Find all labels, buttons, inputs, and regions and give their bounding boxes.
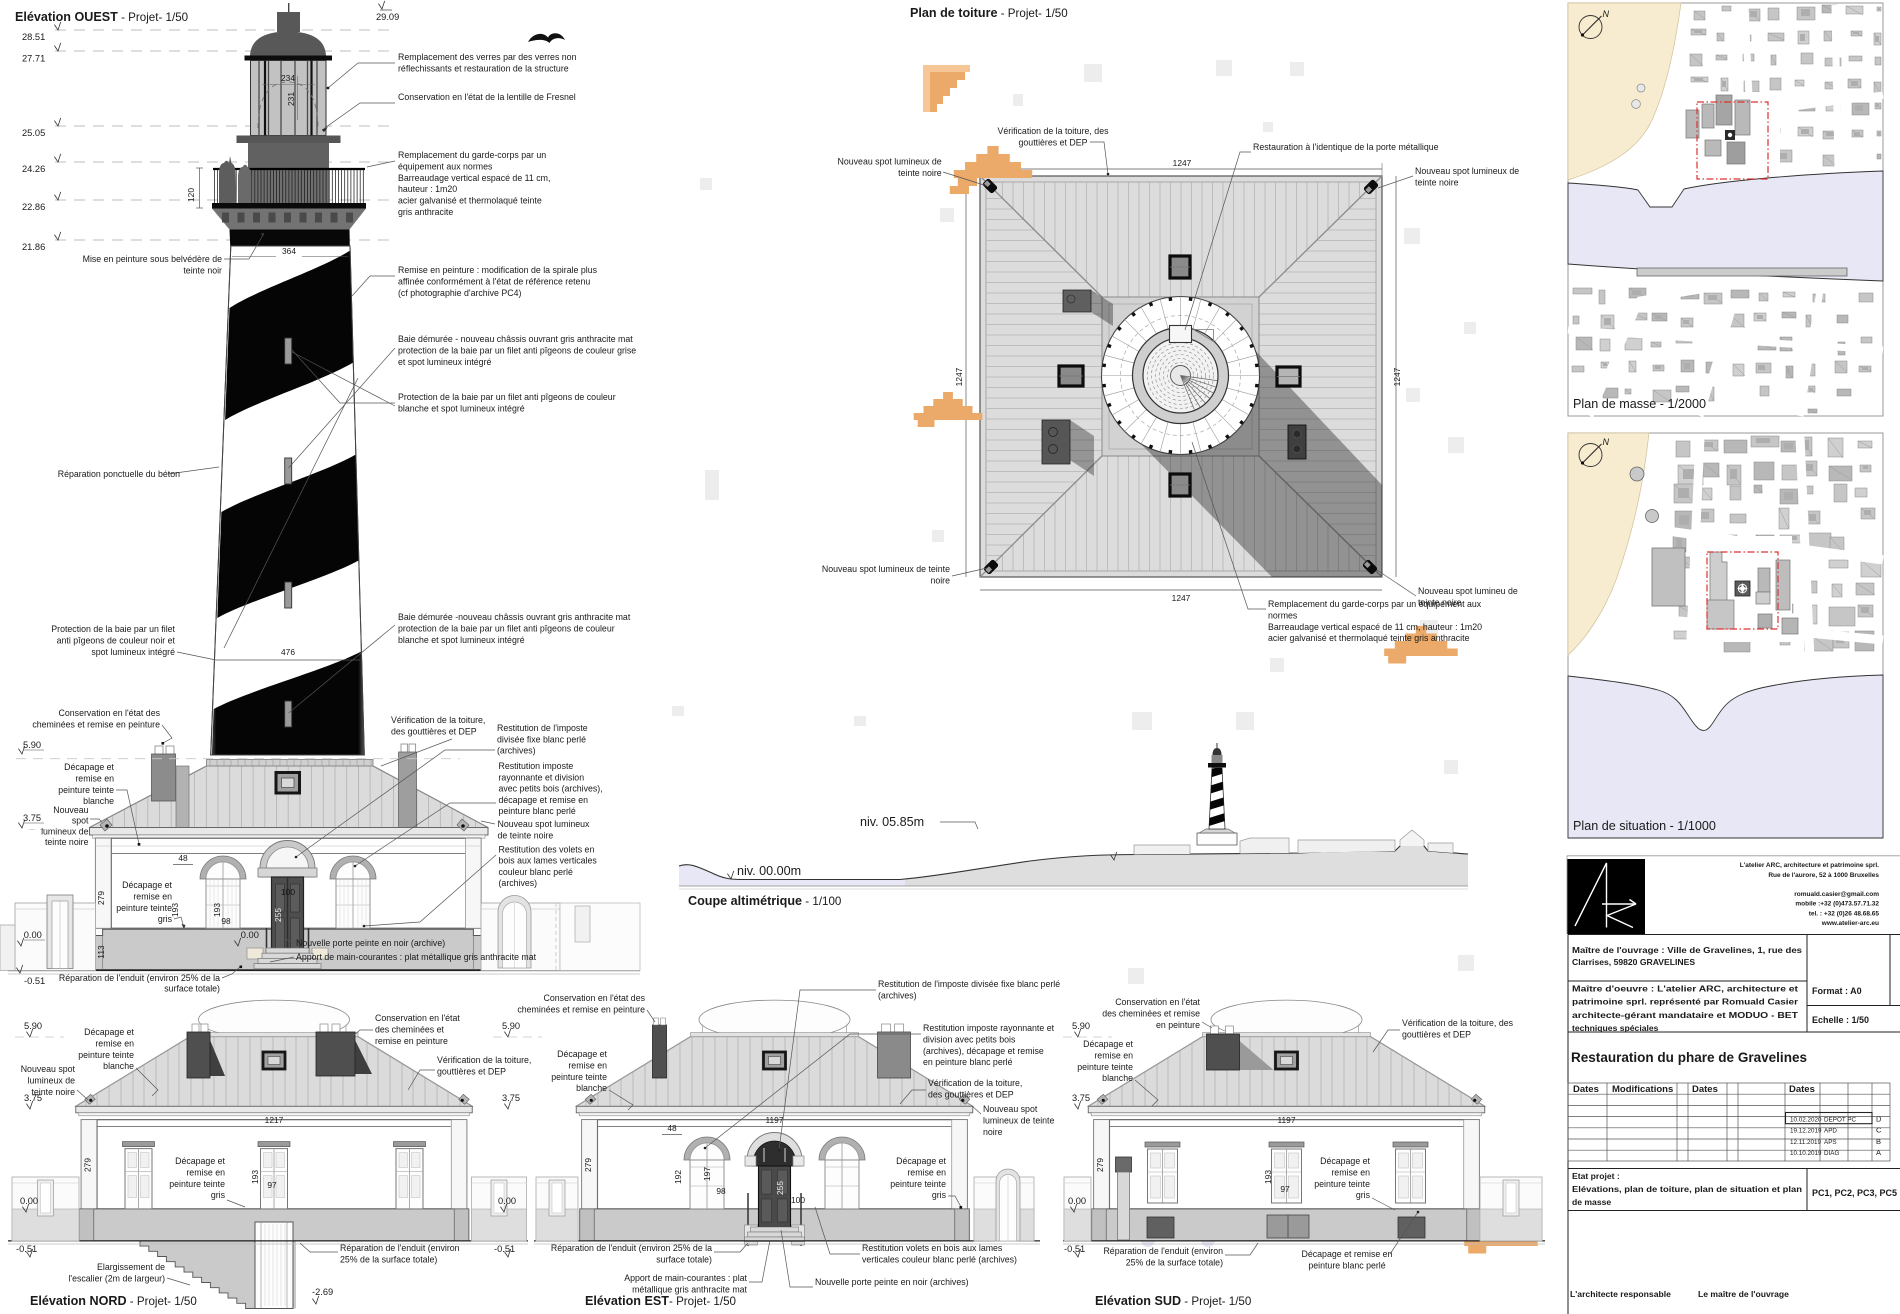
svg-text:Remplacement du garde-corps pa: Remplacement du garde-corps par un équip…	[1268, 599, 1482, 643]
svg-text:10.02.2020: 10.02.2020	[1790, 1117, 1822, 1124]
svg-text:PC1, PC2, PC3, PC5: PC1, PC2, PC3, PC5	[1812, 1188, 1897, 1198]
svg-text:niv. 05.85m: niv. 05.85m	[860, 815, 924, 829]
svg-text:0.00: 0.00	[1068, 1196, 1086, 1206]
svg-text:476: 476	[281, 647, 295, 657]
svg-text:98: 98	[221, 916, 231, 926]
svg-text:279: 279	[96, 891, 106, 905]
svg-text:19.12.2019: 19.12.2019	[1790, 1128, 1822, 1135]
svg-text:Restauration du phare de Grave: Restauration du phare de Gravelines	[1571, 1050, 1807, 1065]
svg-text:A: A	[1876, 1148, 1881, 1157]
svg-text:Elévations, plan de toiture, p: Elévations, plan de toiture, plan de sit…	[1572, 1184, 1802, 1194]
svg-text:B: B	[1876, 1137, 1881, 1146]
svg-text:techniques spéciales: techniques spéciales	[1572, 1023, 1659, 1033]
svg-text:Plan de situation - 1/1000: Plan de situation - 1/1000	[1573, 819, 1716, 833]
svg-text:Le maître de l'ouvrage: Le maître de l'ouvrage	[1698, 1289, 1789, 1299]
svg-text:architecte-gérant mandataire e: architecte-gérant mandataire et MODUO - …	[1572, 1010, 1799, 1020]
svg-text:Echelle : 1/50: Echelle : 1/50	[1812, 1015, 1869, 1025]
svg-text:279: 279	[583, 1158, 593, 1172]
svg-text:APD: APD	[1824, 1128, 1837, 1135]
svg-text:Vérification de la toiture,des: Vérification de la toiture,des gouttière…	[391, 715, 485, 736]
svg-text:Clarrises, 59820 GRAVELINES: Clarrises, 59820 GRAVELINES	[1572, 957, 1695, 967]
svg-text:25.05: 25.05	[22, 128, 45, 138]
svg-text:Dates: Dates	[1692, 1084, 1718, 1095]
svg-text:27.71: 27.71	[22, 54, 45, 64]
svg-text:1247: 1247	[1173, 158, 1192, 168]
svg-text:Restitution volets en bois aux: Restitution volets en bois aux lamesvert…	[862, 1243, 1017, 1264]
svg-text:Conservation en l'état de la l: Conservation en l'état de la lentille de…	[398, 92, 576, 102]
svg-text:patrimoine sprl. représenté pa: patrimoine sprl. représenté par Romuald …	[1572, 997, 1799, 1007]
svg-text:10.10.2019: 10.10.2019	[1790, 1150, 1822, 1157]
svg-text:Nouvelle porte peinte en noir: Nouvelle porte peinte en noir (archive)	[296, 938, 445, 948]
svg-text:5.90: 5.90	[23, 740, 41, 750]
svg-text:Format : A0: Format : A0	[1812, 986, 1862, 996]
svg-text:255: 255	[273, 908, 283, 922]
svg-text:Elévation OUEST - Projet- 1/50: Elévation OUEST - Projet- 1/50	[15, 10, 188, 24]
svg-text:niv. 00.00m: niv. 00.00m	[737, 864, 801, 878]
svg-text:Restauration à l'identique de: Restauration à l'identique de la porte m…	[1253, 142, 1439, 152]
svg-text:Vérification de la toiture,des: Vérification de la toiture,des gouttière…	[928, 1078, 1022, 1099]
svg-text:193: 193	[170, 903, 180, 917]
svg-text:98: 98	[716, 1186, 726, 1196]
svg-text:Maître de l'ouvrage : Ville de: Maître de l'ouvrage : Ville de Graveline…	[1572, 945, 1802, 955]
svg-text:193: 193	[1263, 1170, 1273, 1184]
svg-text:Réparation ponctuelle du béton: Réparation ponctuelle du béton	[58, 469, 180, 479]
svg-text:3.75: 3.75	[1072, 1093, 1090, 1103]
svg-text:12.11.2019: 12.11.2019	[1790, 1139, 1822, 1146]
svg-text:97: 97	[1280, 1184, 1290, 1194]
svg-text:0.00: 0.00	[241, 930, 259, 940]
svg-text:Maître d'oeuvre : L'atelier AR: Maître d'oeuvre : L'atelier ARC, archite…	[1572, 984, 1798, 994]
svg-text:Plan de toiture - Projet- 1/50: Plan de toiture - Projet- 1/50	[910, 6, 1068, 20]
svg-text:Apport de main-courantes : pla: Apport de main-courantes : platmétalliqu…	[624, 1273, 747, 1294]
svg-text:C: C	[1876, 1126, 1882, 1135]
svg-text:28.51: 28.51	[22, 32, 45, 42]
svg-text:Coupe altimétrique - 1/100: Coupe altimétrique - 1/100	[688, 894, 841, 908]
svg-text:Dates: Dates	[1573, 1084, 1599, 1095]
svg-text:193: 193	[250, 1170, 260, 1184]
svg-text:0.00: 0.00	[24, 930, 42, 940]
svg-text:Modifications: Modifications	[1612, 1084, 1673, 1095]
svg-text:N: N	[1603, 437, 1610, 447]
svg-text:231: 231	[286, 92, 296, 106]
svg-text:192: 192	[673, 1170, 683, 1184]
svg-text:97: 97	[267, 1180, 277, 1190]
svg-text:Elévation NORD - Projet- 1/50: Elévation NORD - Projet- 1/50	[30, 1294, 197, 1308]
svg-text:DEPOT PC: DEPOT PC	[1824, 1117, 1857, 1124]
svg-text:Plan de masse - 1/2000: Plan de masse - 1/2000	[1573, 397, 1706, 411]
svg-text:279: 279	[82, 1158, 92, 1172]
svg-text:1247: 1247	[1172, 593, 1191, 603]
svg-text:1247: 1247	[954, 367, 964, 386]
svg-text:Remplacement des verres par de: Remplacement des verres par des verres n…	[398, 52, 577, 73]
svg-text:22.86: 22.86	[22, 202, 45, 212]
svg-text:234: 234	[281, 73, 295, 83]
svg-text:DIAG: DIAG	[1824, 1150, 1839, 1157]
svg-text:100: 100	[791, 1195, 805, 1205]
svg-text:120: 120	[186, 188, 196, 202]
svg-text:48: 48	[178, 853, 188, 863]
svg-text:48: 48	[667, 1123, 677, 1133]
svg-text:5.90: 5.90	[1072, 1021, 1090, 1031]
svg-text:0.00: 0.00	[20, 1196, 38, 1206]
svg-text:113: 113	[96, 945, 106, 959]
svg-text:3.75: 3.75	[502, 1093, 520, 1103]
svg-text:1197: 1197	[1277, 1115, 1295, 1125]
svg-text:29.09: 29.09	[376, 12, 399, 22]
svg-text:L'architecte responsable: L'architecte responsable	[1570, 1289, 1671, 1299]
svg-text:Décapage et remise enpeinture: Décapage et remise enpeinture blanc perl…	[1302, 1249, 1393, 1270]
svg-text:APS: APS	[1824, 1139, 1837, 1146]
svg-text:Apport de main-courantes : pla: Apport de main-courantes : plat métalliq…	[296, 952, 537, 962]
svg-text:193: 193	[212, 903, 222, 917]
svg-text:Dates: Dates	[1789, 1084, 1815, 1095]
svg-text:-0.51: -0.51	[24, 976, 45, 986]
svg-text:1217: 1217	[265, 1115, 284, 1125]
svg-text:-2.69: -2.69	[312, 1287, 333, 1297]
svg-text:24.26: 24.26	[22, 164, 45, 174]
svg-text:Elévation EST- Projet- 1/50: Elévation EST- Projet- 1/50	[585, 1294, 736, 1308]
svg-text:255: 255	[775, 1181, 785, 1195]
svg-text:197: 197	[702, 1167, 712, 1181]
svg-text:Etat projet :: Etat projet :	[1572, 1171, 1620, 1181]
svg-text:3.75: 3.75	[23, 813, 41, 823]
svg-text:364: 364	[282, 246, 296, 256]
svg-text:5.90: 5.90	[24, 1021, 42, 1031]
svg-text:Nouvelle porte peinte en noir: Nouvelle porte peinte en noir (archives)	[815, 1277, 969, 1287]
svg-text:279: 279	[1095, 1158, 1105, 1172]
svg-text:0.00: 0.00	[498, 1196, 516, 1206]
svg-text:N: N	[1603, 9, 1610, 19]
svg-text:21.86: 21.86	[22, 242, 45, 252]
svg-text:D: D	[1876, 1115, 1882, 1124]
svg-text:1247: 1247	[1392, 367, 1402, 386]
svg-text:1197: 1197	[765, 1115, 783, 1125]
svg-text:Elévation SUD - Projet- 1/50: Elévation SUD - Projet- 1/50	[1095, 1294, 1251, 1308]
svg-text:5.90: 5.90	[502, 1021, 520, 1031]
svg-text:100: 100	[281, 887, 295, 897]
svg-text:de masse: de masse	[1572, 1197, 1611, 1207]
